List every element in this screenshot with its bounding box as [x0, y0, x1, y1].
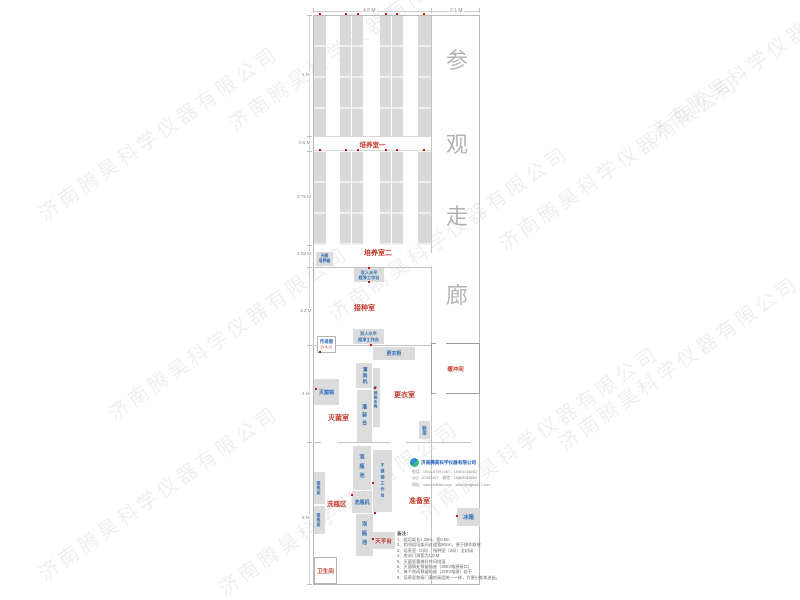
room-label-prep: 准备室	[409, 496, 430, 506]
power-outlet-dot	[368, 267, 370, 269]
room-label-inoculation: 接种室	[354, 303, 375, 313]
door-gap	[436, 392, 446, 394]
power-outlet-dot	[423, 13, 425, 15]
dim-tick	[307, 136, 312, 137]
steel-worktable: 不锈钢工作台	[373, 450, 392, 512]
drying-rack-label: 晾瓶架	[317, 513, 322, 527]
filling-table-label: 灌装台	[361, 404, 368, 428]
watermark-text: 济南腾昊科学仪器有限公司	[642, 0, 800, 146]
corridor-wall	[431, 15, 432, 585]
corridor-char: 参	[446, 50, 468, 72]
room-label-culture1: 培养室一	[360, 139, 386, 149]
culture-rack	[392, 152, 403, 245]
soak-pool-label: 泡瓶池	[359, 454, 366, 482]
light-incubator: 光照 培养箱	[316, 252, 333, 266]
company-contact-lines: 电话：0531-87937467，15064015052QQ：87437467 …	[412, 469, 491, 488]
corridor-char: 走	[446, 206, 468, 228]
culture-rack	[314, 152, 326, 245]
bottle-washer-label: 洗瓶机	[354, 499, 369, 506]
buffer-room: 缓冲间	[431, 343, 480, 394]
power-outlet-dot	[385, 149, 387, 151]
drying-rack-2: 晾瓶架	[314, 506, 325, 534]
dim-left-06m: 0.6 M	[298, 140, 312, 145]
shoe-rack: 鞋架	[419, 421, 430, 439]
power-outlet-dot	[385, 13, 387, 15]
power-outlet-dot	[372, 538, 374, 540]
clean-bench-label: 双人水平 超净工作台	[359, 270, 380, 281]
culture-room1-band: 培养室一	[314, 136, 431, 151]
dim-tick	[307, 442, 312, 443]
culture-rack	[380, 16, 391, 136]
watermark-text: 济南腾昊科学仪器有限公司	[32, 37, 285, 226]
steel-bench-label: 不锈钢条凳	[374, 386, 379, 409]
drying-rack-label: 晾瓶架	[317, 481, 322, 495]
culture-rack	[352, 152, 363, 245]
steel-worktable-label: 不锈钢工作台	[380, 463, 386, 499]
culture-rack	[314, 16, 326, 136]
room-label-sterilize: 灭菌室	[328, 413, 349, 423]
dim-tick	[431, 8, 432, 13]
autoclave: 灭菌锅	[314, 379, 339, 405]
dim-tick	[479, 8, 480, 13]
culture-rack	[352, 16, 363, 136]
power-outlet-dot	[374, 387, 376, 389]
notes-block: 备注： 1、组培架长1.25m，宽0.5m2、相邻组培架间过道宽80cm，便于操…	[397, 531, 487, 580]
dim-tick	[307, 15, 312, 16]
power-outlet-dot	[372, 482, 374, 484]
dim-line-left	[309, 15, 310, 585]
dim-tick	[307, 584, 312, 585]
dim-top-1: 4.8 M	[362, 8, 377, 14]
dim-left-4m: 4 M	[301, 391, 311, 396]
power-outlet-dot	[319, 351, 321, 353]
fridge: 冰箱	[457, 508, 480, 526]
room-label-culture2: 培养室二	[364, 248, 392, 258]
contact-line: 网址：www.sdthkx.com www.tenghao17.com	[412, 482, 491, 488]
door-gap	[431, 253, 432, 266]
soak-pool-2: 泡瓶池	[356, 514, 373, 556]
culture-rack	[340, 152, 351, 245]
culture-rack	[418, 152, 431, 245]
power-outlet-dot	[423, 149, 425, 151]
power-outlet-dot	[357, 13, 359, 15]
dim-left-375m: 3.75 M	[296, 194, 312, 199]
locker-label: 更衣柜	[386, 350, 401, 357]
filling-machine: 灌装机	[356, 363, 372, 388]
soak-pool-1: 泡瓶池	[353, 446, 371, 490]
dim-left-6m: 6 M	[301, 515, 311, 520]
watermark-text: 济南腾昊科学仪器有限公司	[552, 267, 800, 456]
shoe-rack-label: 鞋架	[422, 426, 428, 435]
balance-table: 天平台	[372, 532, 395, 549]
culture-rack	[392, 16, 403, 136]
power-outlet-dot	[396, 13, 398, 15]
room-label-washing: 洗瓶区	[327, 498, 347, 508]
dim-tick	[307, 345, 312, 346]
power-outlet-dot	[351, 494, 353, 496]
clean-bench-1: 双人水平 超净工作台	[354, 268, 384, 282]
notes-list: 1、组培架长1.25m，宽0.5m2、相邻组培架间过道宽80cm，便于操作取放3…	[397, 537, 487, 580]
power-outlet-dot	[370, 344, 372, 346]
door-gap	[321, 442, 338, 443]
power-outlet-dot	[357, 149, 359, 151]
power-outlet-dot	[319, 149, 321, 151]
filling-machine-label: 灌装机	[361, 367, 368, 384]
door-gap	[390, 442, 406, 443]
culture-rack	[380, 152, 391, 245]
drying-rack-1: 晾瓶架	[314, 472, 325, 504]
dim-tick	[307, 151, 312, 152]
dim-tick	[307, 267, 312, 268]
steel-bench: 不锈钢条凳	[373, 368, 380, 427]
corridor-char: 廊	[446, 285, 468, 307]
power-outlet-dot	[374, 512, 376, 514]
door-gap	[436, 342, 446, 344]
company-logo-icon	[410, 458, 419, 467]
soak-pool-label: 泡瓶池	[361, 521, 368, 549]
culture-rack	[340, 16, 351, 136]
locker: 更衣柜	[373, 347, 415, 360]
dim-tick	[313, 8, 314, 13]
fridge-label: 冰箱	[463, 513, 474, 521]
power-outlet-dot	[319, 13, 321, 15]
culture-rack	[418, 16, 431, 136]
floorplan-canvas: 济南腾昊科学仪器有限公司济南腾昊科学仪器有限公司济南腾昊科学仪器有限公司济南腾昊…	[0, 0, 800, 600]
pass-window-size: (0.6㎡)	[321, 345, 332, 350]
dim-tick	[307, 245, 312, 246]
room-label-toilet: 卫生间	[317, 567, 334, 575]
power-outlet-dot	[368, 281, 370, 283]
company-name: 济南腾昊科学仪器有限公司	[421, 460, 476, 466]
dim-left-5m: 5 M	[301, 72, 311, 77]
dim-left-32m: 3.2 M	[299, 308, 313, 313]
corridor-char: 观	[446, 134, 468, 156]
room-label-changing: 更衣室	[394, 390, 415, 400]
dim-left-105m: 1.05 M	[296, 251, 312, 256]
power-outlet-dot	[345, 149, 347, 151]
power-outlet-dot	[315, 388, 317, 390]
clean-bench-2: 双人水平 超净工作台	[353, 329, 384, 344]
filling-table: 灌装台	[357, 390, 372, 442]
power-outlet-dot	[456, 515, 458, 517]
power-outlet-dot	[396, 149, 398, 151]
balance-table-label: 天平台	[375, 537, 392, 545]
note-item: 8、培养室和接门洞的高度统一一样，方便小推车进出。	[397, 575, 487, 580]
bottle-washer: 洗瓶机	[352, 491, 372, 513]
clean-bench-label: 双人水平 超净工作台	[358, 331, 379, 342]
toilet-room: 卫生间	[314, 557, 337, 584]
light-incubator-label: 光照 培养箱	[319, 254, 330, 263]
autoclave-label: 灭菌锅	[319, 389, 334, 396]
power-outlet-dot	[345, 13, 347, 15]
dim-top-2: 2.1 M	[449, 8, 464, 14]
room-label-buffer: 缓冲间	[447, 365, 463, 373]
